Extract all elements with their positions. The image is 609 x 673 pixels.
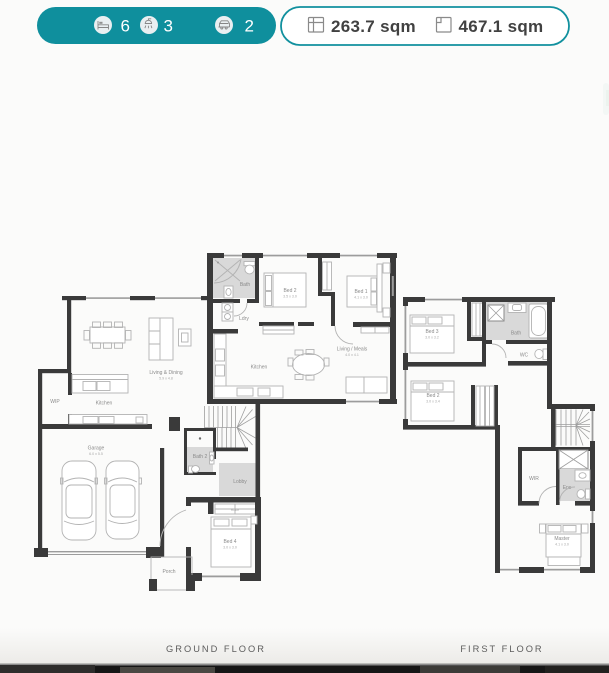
svg-text:4.0 x 4.1: 4.0 x 4.1 [345, 353, 359, 357]
svg-text:4.1 x 3.0: 4.1 x 3.0 [354, 296, 368, 300]
svg-text:Bed 2: Bed 2 [283, 288, 296, 294]
svg-text:Bed 3: Bed 3 [425, 329, 438, 335]
svg-text:WIP: WIP [50, 399, 60, 405]
svg-text:Bath: Bath [240, 282, 251, 288]
svg-text:3.0 x 3.2: 3.0 x 3.2 [425, 336, 439, 340]
svg-text:263.7 sqm: 263.7 sqm [331, 17, 416, 36]
svg-text:Robe: Robe [231, 508, 240, 512]
svg-text:Bath: Bath [511, 331, 522, 337]
svg-text:5.9 x 4.8: 5.9 x 4.8 [159, 377, 173, 381]
svg-text:Bed 4: Bed 4 [223, 539, 236, 545]
svg-text:Kitchen: Kitchen [251, 365, 268, 371]
svg-text:Garage: Garage [88, 446, 105, 452]
svg-text:WIR: WIR [529, 476, 539, 482]
svg-text:3: 3 [164, 17, 173, 36]
svg-text:6.0 x 5.5: 6.0 x 5.5 [89, 452, 103, 456]
svg-text:Living / Meals: Living / Meals [337, 347, 368, 353]
svg-text:3.0 x 3.4: 3.0 x 3.4 [426, 400, 440, 404]
svg-text:Bath 2: Bath 2 [193, 454, 208, 460]
svg-text:WC: WC [520, 353, 529, 359]
svg-text:3.0 x 3.0: 3.0 x 3.0 [223, 546, 237, 550]
svg-text:Kitchen: Kitchen [96, 401, 113, 407]
svg-text:467.1 sqm: 467.1 sqm [459, 17, 544, 36]
svg-text:Lobby: Lobby [233, 479, 247, 485]
svg-text:FIRST FLOOR: FIRST FLOOR [460, 644, 543, 654]
svg-text:3.5 x 3.0: 3.5 x 3.0 [283, 295, 297, 299]
svg-text:2: 2 [245, 17, 254, 36]
svg-text:Ldry: Ldry [239, 316, 249, 322]
svg-text:Bed 1: Bed 1 [354, 289, 367, 295]
svg-text:GROUND FLOOR: GROUND FLOOR [166, 644, 266, 654]
svg-text:Master: Master [554, 536, 570, 542]
svg-text:6: 6 [121, 17, 130, 36]
svg-text:Living & Dining: Living & Dining [149, 370, 183, 376]
svg-text:Porch: Porch [162, 569, 175, 575]
svg-text:Bed 2: Bed 2 [426, 393, 439, 399]
svg-text:4.1 x 3.0: 4.1 x 3.0 [555, 543, 569, 547]
